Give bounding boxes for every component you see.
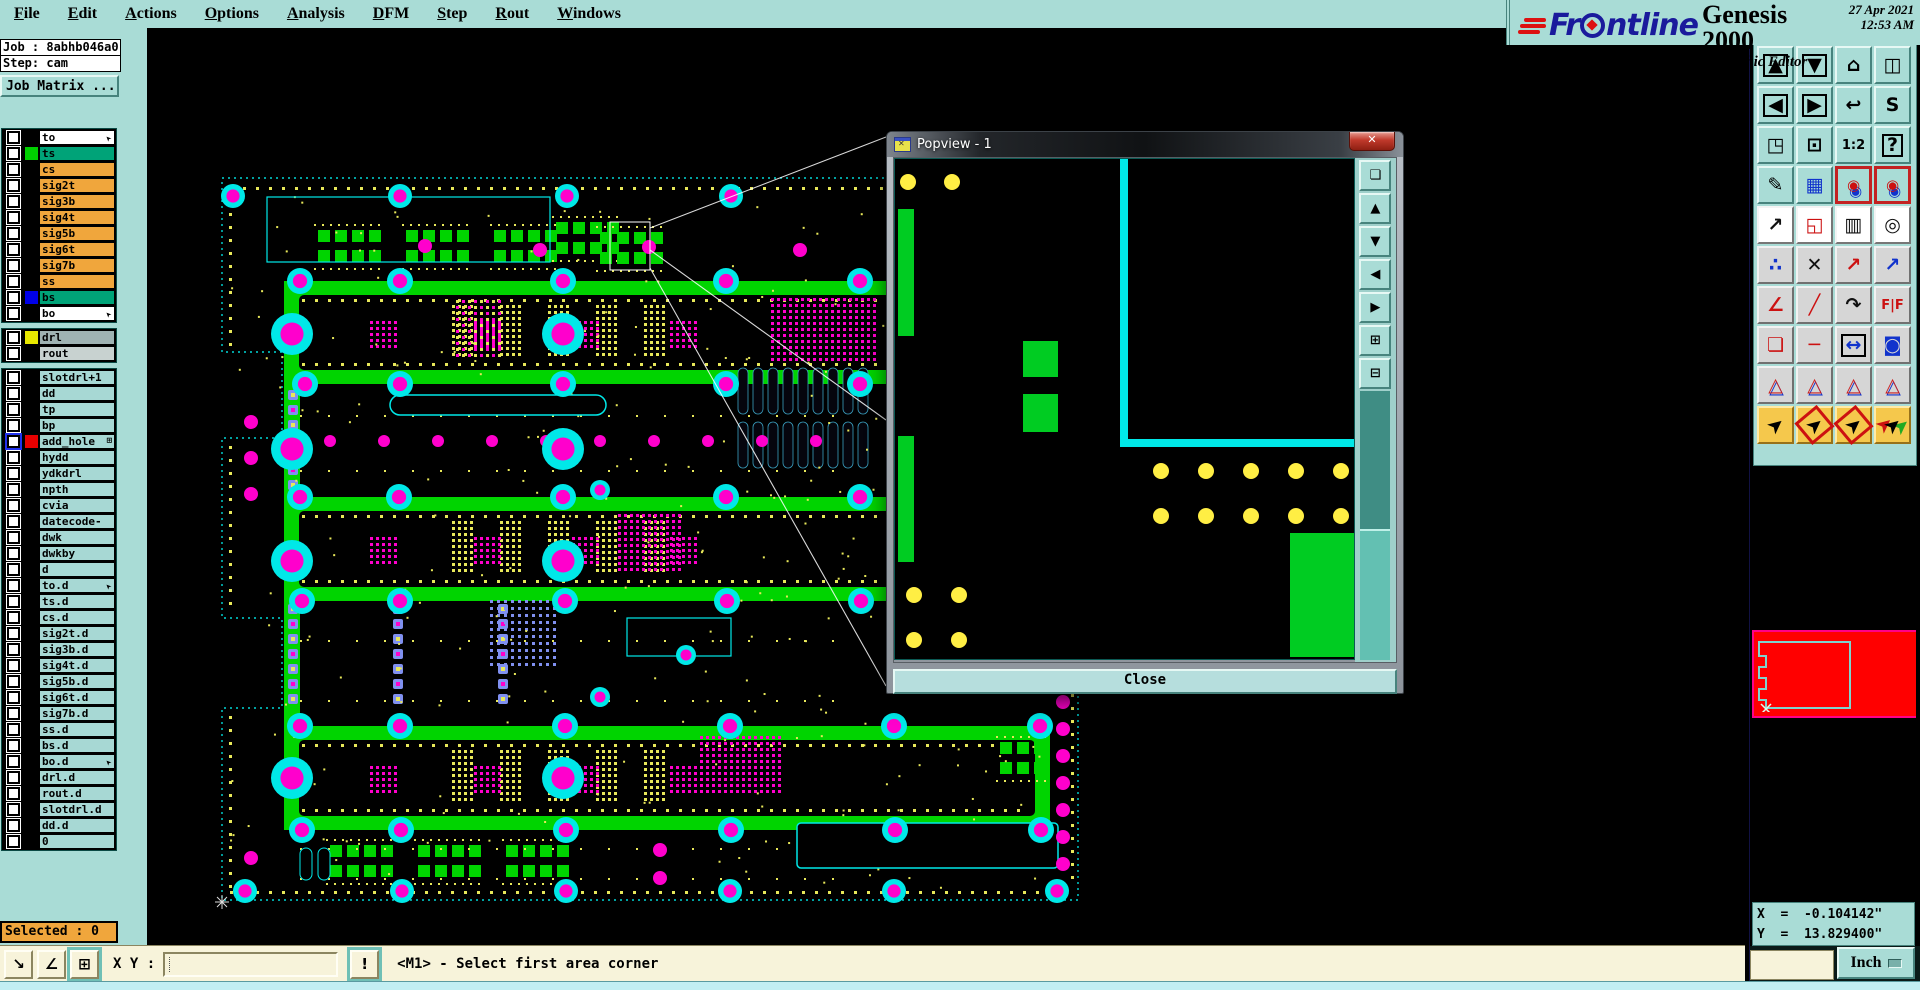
checkbox-icon (7, 483, 20, 496)
layer-color-swatch[interactable] (24, 290, 39, 305)
layer-name[interactable]: cs (39, 162, 115, 177)
layer-checkbox[interactable] (3, 658, 24, 673)
checkbox-icon (7, 387, 20, 400)
layer-row-npth[interactable]: npth (3, 482, 115, 497)
layer-color-swatch[interactable] (24, 834, 39, 849)
window-grid-button[interactable]: ⊞ (70, 950, 99, 979)
line-measure-button[interactable]: ╱ (1796, 286, 1833, 324)
layer-row-add_hole[interactable]: add_hole⊞ (3, 434, 115, 449)
netlist-bottom-button[interactable]: ◉ (1874, 166, 1911, 204)
pan-right-button-icon: ▶ (1802, 94, 1827, 117)
layer-checkbox[interactable] (3, 594, 24, 609)
product-edition: Graphic Editor (1714, 54, 1808, 71)
layer-checkbox[interactable] (3, 562, 24, 577)
layer-row-bp[interactable]: bp (3, 418, 115, 433)
angle-measure-button[interactable]: ∠ (1757, 286, 1794, 324)
layer-checkbox[interactable] (3, 546, 24, 561)
layer-checkbox[interactable] (3, 626, 24, 641)
checkbox-icon (7, 723, 20, 736)
layer-checkbox[interactable] (3, 642, 24, 657)
layer-name[interactable]: add_hole⊞ (39, 434, 115, 449)
layer-name[interactable]: slotdrl.d (39, 802, 115, 817)
menu-analysis[interactable]: Analysis (273, 5, 359, 23)
layer-row-sig2t.d[interactable]: sig2t.d (3, 626, 115, 641)
layer-checkbox[interactable] (3, 306, 24, 321)
menu-file[interactable]: File (0, 5, 54, 23)
layer-row-rout[interactable]: rout (3, 346, 115, 361)
layer-name[interactable]: 0 (39, 834, 115, 849)
cyan-trace (1120, 159, 1128, 447)
layer-row-ydkdrl[interactable]: ydkdrl (3, 466, 115, 481)
popview-close-icon[interactable]: ✕ (1349, 132, 1395, 151)
checkbox-icon (7, 579, 20, 592)
zoom-in-button[interactable]: ⊡ (1796, 126, 1833, 164)
scale-1-2-button-icon: 1:2 (1842, 139, 1865, 152)
frontline-logo-icon: Frntline (1518, 8, 1698, 43)
layer-name[interactable]: sig4t (39, 210, 115, 225)
copy-to-button-icon: ↗ (1846, 256, 1862, 275)
checkbox-icon (7, 659, 20, 672)
previous-view-button[interactable]: ↩ (1835, 86, 1872, 124)
layer-row-sig3b.d[interactable]: sig3b.d (3, 642, 115, 657)
checkbox-icon (7, 243, 20, 256)
query-button[interactable]: ? (1874, 126, 1911, 164)
layer-name[interactable]: cvia (39, 498, 115, 513)
layer-color-swatch[interactable] (24, 498, 39, 513)
layer-row-sig5b.d[interactable]: sig5b.d (3, 674, 115, 689)
work-layer-arrow-icon: ➤ (102, 131, 115, 144)
layer-color-swatch[interactable] (24, 626, 39, 641)
layer-checkbox[interactable] (3, 402, 24, 417)
layer-name[interactable]: sig7b.d (39, 706, 115, 721)
layer-checkbox[interactable] (3, 210, 24, 225)
layer-checkbox[interactable] (3, 146, 24, 161)
layer-row-to.d[interactable]: to.d➤ (3, 578, 115, 593)
layer-row-dwkby[interactable]: dwkby (3, 546, 115, 561)
layer-checkbox[interactable] (3, 274, 24, 289)
command-icon-buttons: ↘∠⊞ (0, 950, 99, 979)
layer-row-rout.d[interactable]: rout.d (3, 786, 115, 801)
layer-name[interactable]: rout (39, 346, 115, 361)
popview-canvas[interactable] (894, 158, 1355, 660)
layer-name[interactable]: dd.d (39, 818, 115, 833)
checkbox-icon (7, 403, 20, 416)
layer-color-swatch[interactable] (24, 306, 39, 321)
layer-row-dd.d[interactable]: dd.d (3, 818, 115, 833)
layer-color-swatch[interactable] (24, 346, 39, 361)
layer-row-bs[interactable]: bs (3, 290, 115, 305)
xy-input[interactable] (163, 952, 338, 977)
layer-checkbox[interactable] (3, 754, 24, 769)
layer-name[interactable]: tp (39, 402, 115, 417)
pop-pan-right-button[interactable]: ▶ (1359, 292, 1391, 323)
layer-color-swatch[interactable] (24, 146, 39, 161)
serpentine-view-button[interactable]: S (1874, 86, 1911, 124)
layer-row-ss.d[interactable]: ss.d (3, 722, 115, 737)
layer-row-hydd[interactable]: hydd (3, 450, 115, 465)
layer-name[interactable]: sig4t.d (39, 658, 115, 673)
layer-checkbox[interactable] (3, 530, 24, 545)
layer-name[interactable]: dd (39, 386, 115, 401)
zoom-window-button[interactable]: ◱ (1796, 206, 1833, 244)
profile-triangle-4-button[interactable]: △ (1874, 366, 1911, 404)
layer-color-swatch[interactable] (24, 258, 39, 273)
layer-name[interactable]: datecode-to (39, 514, 115, 529)
checkbox-icon (7, 787, 20, 800)
layer-row-drl.d[interactable]: drl.d (3, 770, 115, 785)
copy-to-button[interactable]: ↗ (1835, 246, 1872, 284)
menu-dfm[interactable]: DFM (359, 5, 423, 23)
layer-color-swatch[interactable] (24, 418, 39, 433)
layer-row-bo[interactable]: bo➤ (3, 306, 115, 321)
layer-checkbox[interactable] (3, 706, 24, 721)
checkbox-icon (7, 259, 20, 272)
layer-name[interactable]: npth (39, 482, 115, 497)
layer-name[interactable]: drl (39, 330, 115, 345)
layer-checkbox[interactable] (3, 786, 24, 801)
layer-color-swatch[interactable] (24, 642, 39, 657)
layer-color-swatch[interactable] (24, 226, 39, 241)
layer-name[interactable]: dwk (39, 530, 115, 545)
layer-row-cs[interactable]: cs (3, 162, 115, 177)
layer-name[interactable]: sig6t.d (39, 690, 115, 705)
layer-checkbox[interactable] (3, 162, 24, 177)
layer-checkbox[interactable] (3, 818, 24, 833)
angle-alpha-button[interactable]: ∠ (37, 950, 66, 979)
yellow-pad (1288, 463, 1304, 479)
layer-row-slotdrl+1[interactable]: slotdrl+1 (3, 370, 115, 385)
popview-titlebar[interactable]: Popview - 1 ✕ (887, 132, 1403, 157)
layer-checkbox[interactable] (3, 434, 24, 449)
layer-name[interactable]: to.d➤ (39, 578, 115, 593)
layer-row-to[interactable]: to➤ (3, 130, 115, 145)
layer-row-sig7b.d[interactable]: sig7b.d (3, 706, 115, 721)
checkbox-icon (7, 547, 20, 560)
layer-name[interactable]: sig3b.d (39, 642, 115, 657)
yellow-pad (1153, 508, 1169, 524)
layer-checkbox[interactable] (3, 346, 24, 361)
layer-name[interactable]: hydd (39, 450, 115, 465)
layer-color-swatch[interactable] (24, 130, 39, 145)
layer-color-swatch[interactable] (24, 434, 39, 449)
layer-row-ts.d[interactable]: ts.d (3, 594, 115, 609)
layer-color-swatch[interactable] (24, 770, 39, 785)
layer-checkbox[interactable] (3, 482, 24, 497)
layer-name[interactable]: sig3b (39, 194, 115, 209)
checkbox-icon (7, 419, 20, 432)
prompt-history-button[interactable]: ! (350, 950, 379, 979)
profile-triangle-2-button-icon: △ (1807, 376, 1822, 395)
copy-pad-button[interactable]: ❏ (1757, 326, 1794, 364)
menu-windows[interactable]: Windows (543, 5, 635, 23)
layer-checkbox[interactable] (3, 226, 24, 241)
cyan-trace (1120, 439, 1355, 447)
menu-actions[interactable]: Actions (111, 5, 191, 23)
checkbox-icon (7, 467, 20, 480)
green-plane-bar (898, 209, 914, 336)
home-view-button[interactable]: ⌂ (1835, 46, 1872, 84)
layer-name[interactable]: ts.d (39, 594, 115, 609)
menu-items: FileEditActionsOptionsAnalysisDFMStepRou… (0, 5, 635, 23)
units-dropdown[interactable]: Inch (1837, 947, 1915, 979)
layer-row-sig7b[interactable]: sig7b (3, 258, 115, 273)
layer-color-swatch[interactable] (24, 530, 39, 545)
layer-checkbox[interactable] (3, 178, 24, 193)
pop-zoom-out-button[interactable]: ⊟ (1359, 358, 1391, 389)
layer-color-swatch[interactable] (24, 706, 39, 721)
layer-color-swatch[interactable] (24, 802, 39, 817)
popview-scrollbar[interactable] (1360, 391, 1390, 660)
layer-name[interactable]: sig5b (39, 226, 115, 241)
layer-color-swatch[interactable] (24, 722, 39, 737)
yellow-pad (944, 174, 960, 190)
layer-row-sig2t[interactable]: sig2t (3, 178, 115, 193)
profile-triangle-1-button[interactable]: △ (1757, 366, 1794, 404)
move-to-button-icon: ↗ (1885, 256, 1901, 275)
pop-pan-left-button[interactable]: ◀ (1359, 259, 1391, 290)
pop-zoom-in-button[interactable]: ⊞ (1359, 325, 1391, 356)
zoom-out-button[interactable]: ◳ (1757, 126, 1794, 164)
layer-color-swatch[interactable] (24, 274, 39, 289)
previous-view-button-icon: ↩ (1846, 96, 1862, 115)
layer-checkbox[interactable] (3, 466, 24, 481)
cancel-button[interactable]: ✕ (1796, 246, 1833, 284)
select-polygon-button[interactable]: ➤ (1835, 406, 1872, 444)
layer-color-swatch[interactable] (24, 610, 39, 625)
layer-checkbox[interactable] (3, 770, 24, 785)
layer-row-bo.d[interactable]: bo.d➤ (3, 754, 115, 769)
profile-triangle-3-button[interactable]: △ (1835, 366, 1872, 404)
layer-color-swatch[interactable] (24, 786, 39, 801)
layer-color-swatch[interactable] (24, 402, 39, 417)
rotate-button[interactable]: ↷ (1835, 286, 1872, 324)
select-net-button[interactable]: ➤ (1874, 406, 1911, 444)
layer-checkbox[interactable] (3, 610, 24, 625)
layer-row-bs.d[interactable]: bs.d (3, 738, 115, 753)
layer-checkbox[interactable] (3, 834, 24, 849)
layer-checkbox[interactable] (3, 386, 24, 401)
layer-row-datecode-to[interactable]: datecode-to (3, 514, 115, 529)
layer-row-sig3b[interactable]: sig3b (3, 194, 115, 209)
layer-row-sig4t[interactable]: sig4t (3, 210, 115, 225)
layer-checkbox[interactable] (3, 578, 24, 593)
layer-color-swatch[interactable] (24, 546, 39, 561)
layer-color-swatch[interactable] (24, 594, 39, 609)
checkbox-icon (7, 435, 20, 448)
layer-row-sig4t.d[interactable]: sig4t.d (3, 658, 115, 673)
popview-window-icon (894, 137, 911, 152)
pop-detach-button[interactable]: ❏ (1359, 160, 1391, 191)
popview-scrollbar-thumb[interactable] (1360, 529, 1390, 660)
layer-name[interactable]: bo.d➤ (39, 754, 115, 769)
move-view-button[interactable]: ↗ (1757, 206, 1794, 244)
net-points-button[interactable]: ∴ (1757, 246, 1794, 284)
layer-color-swatch[interactable] (24, 210, 39, 225)
pan-right-button[interactable]: ▶ (1796, 86, 1833, 124)
scale-1-2-button[interactable]: 1:2 (1835, 126, 1872, 164)
layer-row-sig6t[interactable]: sig6t (3, 242, 115, 257)
layer-color-swatch[interactable] (24, 242, 39, 257)
layer-color-swatch[interactable] (24, 386, 39, 401)
select-frame-button-icon: ➤ (1794, 405, 1834, 445)
layer-row-slotdrl.d[interactable]: slotdrl.d (3, 802, 115, 817)
navigator-overview[interactable] (1752, 630, 1916, 718)
layer-name[interactable]: sig2t (39, 178, 115, 193)
pop-pan-down-button[interactable]: ▼ (1359, 226, 1391, 257)
layer-row-drl[interactable]: drl (3, 330, 115, 345)
yellow-pad (1333, 463, 1349, 479)
layer-color-swatch[interactable] (24, 178, 39, 193)
spacing-button[interactable]: ─ (1796, 326, 1833, 364)
layer-checkbox[interactable] (3, 418, 24, 433)
cancel-button-icon: ✕ (1807, 256, 1823, 275)
layer-checkbox[interactable] (3, 738, 24, 753)
layer-color-swatch[interactable] (24, 690, 39, 705)
layer-row-sig5b[interactable]: sig5b (3, 226, 115, 241)
work-layer-arrow-icon: ➤ (102, 755, 115, 768)
layer-name[interactable]: rout.d (39, 786, 115, 801)
select-polygon-button-icon: ➤ (1833, 405, 1873, 445)
layer-name[interactable]: slotdrl+1 (39, 370, 115, 385)
layer-color-swatch[interactable] (24, 482, 39, 497)
layer-name[interactable]: sig5b.d (39, 674, 115, 689)
pan-left-button[interactable]: ◀ (1757, 86, 1794, 124)
layer-checkbox[interactable] (3, 370, 24, 385)
popview-close-button[interactable]: Close (893, 669, 1397, 694)
menu-edit[interactable]: Edit (54, 5, 111, 23)
popview-window: Popview - 1 ✕ ❏▲▼◀▶⊞⊟ Close (886, 131, 1404, 694)
layer-name[interactable]: d (39, 562, 115, 577)
layer-row-ss[interactable]: ss (3, 274, 115, 289)
mirror-button-icon: F|F (1881, 299, 1904, 312)
copy-pad-button-icon: ❏ (1767, 336, 1784, 355)
yellow-pad (1198, 508, 1214, 524)
layer-color-swatch[interactable] (24, 514, 39, 529)
units-blank-field[interactable] (1750, 950, 1834, 980)
layer-row-sig6t.d[interactable]: sig6t.d (3, 690, 115, 705)
distance-button[interactable]: ↔ (1835, 326, 1872, 364)
layer-color-swatch[interactable] (24, 450, 39, 465)
layer-checkbox[interactable] (3, 674, 24, 689)
layer-color-swatch[interactable] (24, 578, 39, 593)
zoom-in-button-icon: ⊡ (1807, 136, 1823, 155)
select-frame-button[interactable]: ➤ (1796, 406, 1833, 444)
layer-checkbox[interactable] (3, 130, 24, 145)
coord-x: X = -0.104142" (1757, 907, 1882, 922)
layer-checkbox[interactable] (3, 498, 24, 513)
layer-name[interactable]: cs.d (39, 610, 115, 625)
layer-color-swatch[interactable] (24, 562, 39, 577)
layer-name[interactable]: bs (39, 290, 115, 305)
setup-tools-button[interactable]: ✎ (1757, 166, 1794, 204)
units-row: Inch (1750, 946, 1920, 981)
layer-name[interactable]: bp (39, 418, 115, 433)
layer-color-swatch[interactable] (24, 194, 39, 209)
zoom-out-button-icon: ◳ (1767, 136, 1785, 155)
checkbox-icon (7, 803, 20, 816)
layer-color-swatch[interactable] (24, 370, 39, 385)
layer-checkbox[interactable] (3, 690, 24, 705)
layer-color-swatch[interactable] (24, 818, 39, 833)
menu-step[interactable]: Step (423, 5, 481, 23)
layer-color-swatch[interactable] (24, 466, 39, 481)
layer-checkbox[interactable] (3, 514, 24, 529)
layer-name[interactable]: to➤ (39, 130, 115, 145)
layer-color-swatch[interactable] (24, 162, 39, 177)
layer-name[interactable]: ydkdrl (39, 466, 115, 481)
window-xy-button[interactable]: ◫ (1874, 46, 1911, 84)
layer-color-swatch[interactable] (24, 674, 39, 689)
layer-checkbox[interactable] (3, 242, 24, 257)
move-to-button[interactable]: ↗ (1874, 246, 1911, 284)
menu-options[interactable]: Options (191, 5, 273, 23)
layer-checkbox[interactable] (3, 450, 24, 465)
layer-color-swatch[interactable] (24, 330, 39, 345)
layer-checkbox[interactable] (3, 722, 24, 737)
ruler-button[interactable]: ▥ (1835, 206, 1872, 244)
layer-name[interactable]: sig6t (39, 242, 115, 257)
layer-name[interactable]: bs.d (39, 738, 115, 753)
layer-row-tp[interactable]: tp (3, 402, 115, 417)
layer-color-swatch[interactable] (24, 754, 39, 769)
select-pad-button-icon: ◎ (1884, 216, 1901, 235)
select-pad-button[interactable]: ◎ (1874, 206, 1911, 244)
checkbox-icon (7, 195, 20, 208)
layer-name[interactable]: bo➤ (39, 306, 115, 321)
menu-rout[interactable]: Rout (481, 5, 543, 23)
layer-checkbox[interactable] (3, 290, 24, 305)
pop-pan-up-button[interactable]: ▲ (1359, 193, 1391, 224)
profile-triangle-1-button-icon: △ (1768, 376, 1783, 395)
diagonal-measure-button[interactable]: ↘ (4, 950, 33, 979)
layer-color-swatch[interactable] (24, 658, 39, 673)
layer-name[interactable]: sig7b (39, 258, 115, 273)
yellow-pad (906, 587, 922, 603)
layer-row-0[interactable]: 0 (3, 834, 115, 849)
profile-triangle-2-button[interactable]: △ (1796, 366, 1833, 404)
select-cursor-button[interactable]: ➤ (1757, 406, 1794, 444)
selected-count-badge: Selected : 0 (0, 921, 118, 943)
layer-name[interactable]: ss.d (39, 722, 115, 737)
right-panel: ▲▼⌂◫◀▶↩S◳⊡1:2?✎▦◉◉↗◱▥◎∴✕↗↗∠╱↷F|F❏─↔◙△△△△… (1749, 28, 1920, 981)
mirror-button[interactable]: F|F (1874, 286, 1911, 324)
layer-name[interactable]: dwkby (39, 546, 115, 561)
checkbox-icon (7, 819, 20, 832)
layer-name[interactable]: sig2t.d (39, 626, 115, 641)
layer-color-swatch[interactable] (24, 738, 39, 753)
surface-button-icon: ◙ (1883, 336, 1901, 355)
layer-checkbox[interactable] (3, 802, 24, 817)
layer-row-cs.d[interactable]: cs.d (3, 610, 115, 625)
layer-row-cvia[interactable]: cvia (3, 498, 115, 513)
layer-row-d[interactable]: d (3, 562, 115, 577)
netlist-top-button[interactable]: ◉ (1835, 166, 1872, 204)
layer-row-dwk[interactable]: dwk (3, 530, 115, 545)
grid-button-icon: ▦ (1806, 176, 1824, 195)
layer-row-ts[interactable]: ts (3, 146, 115, 161)
surface-button[interactable]: ◙ (1874, 326, 1911, 364)
layer-checkbox[interactable] (3, 258, 24, 273)
layer-name[interactable]: ss (39, 274, 115, 289)
layer-name[interactable]: ts (39, 146, 115, 161)
layer-checkbox[interactable] (3, 194, 24, 209)
layer-name[interactable]: drl.d (39, 770, 115, 785)
job-matrix-button[interactable]: Job Matrix ... (0, 75, 119, 97)
layer-checkbox[interactable] (3, 330, 24, 345)
grid-button[interactable]: ▦ (1796, 166, 1833, 204)
checkbox-icon (7, 331, 20, 344)
layer-row-dd[interactable]: dd (3, 386, 115, 401)
